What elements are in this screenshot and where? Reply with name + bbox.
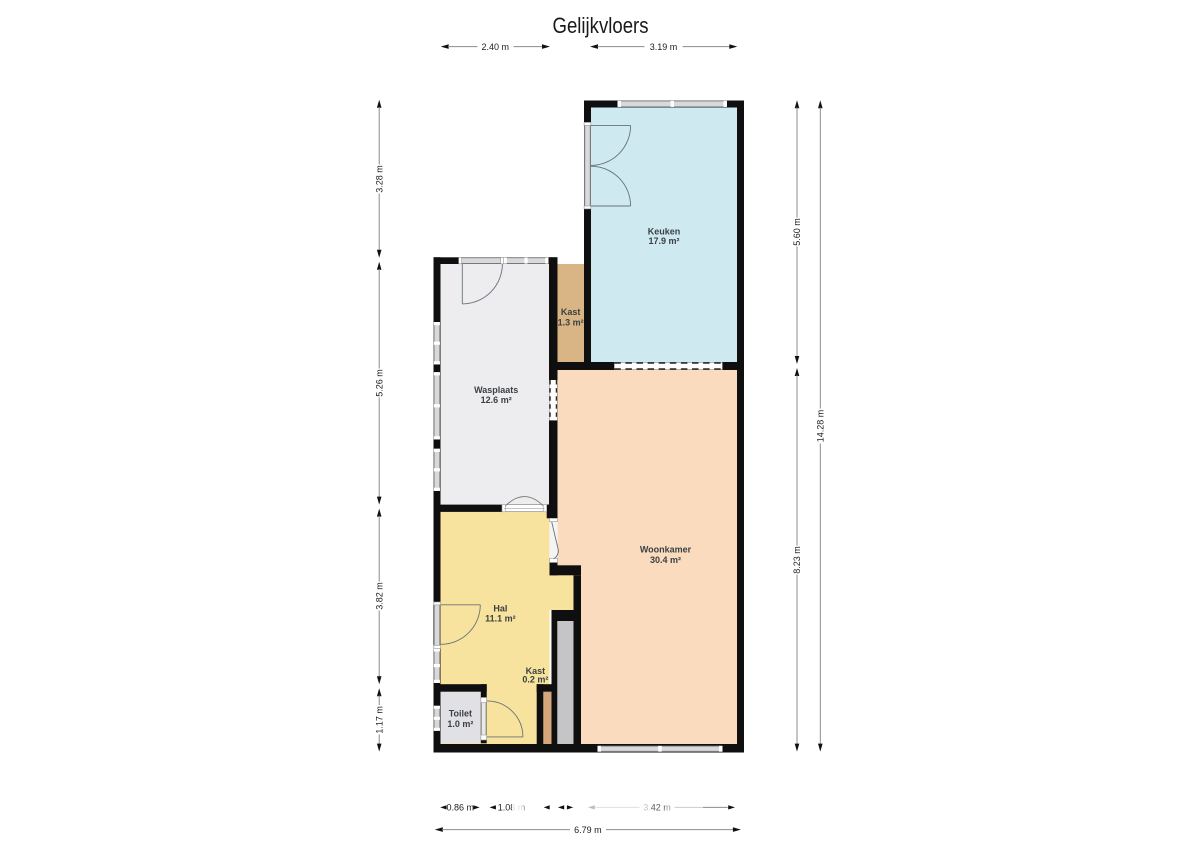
svg-text:8.23 m: 8.23 m — [792, 546, 802, 574]
svg-text:Wasplaats: Wasplaats — [474, 385, 518, 395]
svg-text:12.6 m²: 12.6 m² — [481, 395, 512, 405]
svg-text:Toilet: Toilet — [449, 709, 472, 719]
svg-text:3.19 m: 3.19 m — [650, 42, 678, 52]
svg-text:17.9 m²: 17.9 m² — [648, 236, 679, 246]
svg-text:11.1 m²: 11.1 m² — [485, 614, 516, 624]
svg-text:Kast: Kast — [561, 307, 581, 317]
svg-text:2.40 m: 2.40 m — [482, 42, 510, 52]
svg-text:5.60 m: 5.60 m — [792, 218, 802, 246]
svg-text:Gelijkvloers: Gelijkvloers — [553, 13, 649, 38]
svg-text:0.86 m: 0.86 m — [447, 803, 475, 813]
svg-text:3.82 m: 3.82 m — [374, 582, 384, 610]
svg-text:3.28 m: 3.28 m — [374, 165, 384, 193]
svg-text:0.2 m²: 0.2 m² — [522, 675, 548, 685]
svg-text:Woonkamer: Woonkamer — [640, 545, 692, 555]
svg-text:1.17 m: 1.17 m — [374, 706, 384, 734]
svg-text:30.4 m²: 30.4 m² — [650, 555, 681, 565]
svg-text:Hal: Hal — [493, 603, 507, 613]
svg-text:1.3 m²: 1.3 m² — [558, 317, 584, 327]
svg-text:14.28 m: 14.28 m — [816, 410, 826, 443]
svg-text:1.0 m²: 1.0 m² — [447, 719, 473, 729]
svg-text:5.26 m: 5.26 m — [374, 369, 384, 397]
svg-text:6.79 m: 6.79 m — [574, 825, 602, 835]
